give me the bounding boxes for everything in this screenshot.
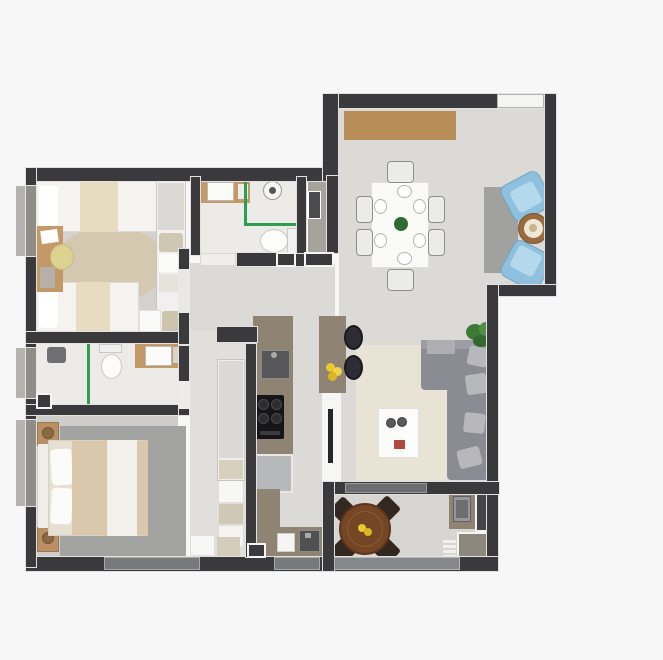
wall-bathroom1-east <box>296 176 307 254</box>
bed-single-top-pillow <box>39 186 58 227</box>
laundry-tank <box>277 533 295 552</box>
dining-chair-north <box>387 161 414 183</box>
cooktop-burner <box>271 413 282 424</box>
cooktop-burner <box>258 413 269 424</box>
closet-rack-hangers <box>219 361 243 458</box>
nightstand-lamp <box>42 427 54 439</box>
desk-accessories <box>40 267 55 288</box>
column-service <box>247 543 266 558</box>
closet-box <box>219 460 243 479</box>
bed-single-bottom-blanket <box>76 282 110 333</box>
window-bedroom2 <box>25 185 37 257</box>
cooktop-burner <box>271 399 282 410</box>
cooktop-controls <box>260 431 280 435</box>
place-setting <box>413 233 426 248</box>
coffee-table-books <box>394 440 405 449</box>
bed-single-bottom-pillow <box>39 287 58 328</box>
table-centerpiece-plant <box>394 217 408 231</box>
island-flowers <box>328 372 337 381</box>
sliding-glass-door <box>345 483 427 493</box>
wall-dining-west <box>326 175 339 254</box>
master-headboard <box>38 444 48 528</box>
closet2-lower-towel <box>139 310 161 333</box>
bed-single-top-blanket <box>80 181 118 232</box>
bbq-grill-inner <box>456 500 468 518</box>
wall-right-upper <box>544 93 557 296</box>
wall-corridor-top <box>216 326 258 343</box>
wall-connector <box>322 93 339 182</box>
balcony-glass-rail <box>334 557 460 570</box>
closet-lower-towel <box>190 535 215 556</box>
nook-teapot <box>529 224 537 232</box>
place-setting <box>413 199 426 214</box>
toilet2-tank <box>99 344 122 353</box>
bar-stool <box>344 355 363 380</box>
floor-grate-bar <box>443 550 456 553</box>
shower1-glass-vertical <box>244 180 247 226</box>
shower1-head-dot <box>269 187 276 194</box>
ensuite-sink <box>145 346 172 366</box>
service-faucet <box>305 533 311 538</box>
toilet2-bowl <box>101 354 122 379</box>
wall-right-lower <box>486 284 499 572</box>
master-throw <box>107 440 137 536</box>
entry-door <box>497 94 544 108</box>
dining-chair-east-1 <box>428 196 445 223</box>
coffee-table <box>378 408 419 458</box>
wall-bathroom1-west <box>190 176 201 256</box>
dining-chair-west-1 <box>356 196 373 223</box>
dining-chair-south <box>387 269 414 291</box>
window-ensuite <box>25 347 37 399</box>
desk-paper <box>40 229 59 244</box>
bedroom2-door <box>178 269 190 313</box>
dining-chair-west-2 <box>356 229 373 256</box>
floor-grate-bar <box>443 540 456 543</box>
window-sill <box>16 186 25 256</box>
shower1-glass-horizontal <box>244 223 298 226</box>
kitchen-island <box>319 316 346 393</box>
sofa-throw <box>427 340 455 354</box>
place-setting <box>374 199 387 214</box>
dining-chair-east-2 <box>428 229 445 256</box>
tv <box>328 409 333 463</box>
coffee-table-cup <box>397 417 407 427</box>
bathroom1-sink <box>207 182 234 201</box>
sofa-pillow <box>465 373 489 396</box>
window-service <box>274 557 320 570</box>
shaft-top-duct <box>308 191 321 219</box>
kitchen-faucet <box>271 352 277 358</box>
toilet1-bowl <box>260 229 288 253</box>
sofa-pillow <box>463 412 486 434</box>
master-pillow <box>50 448 73 485</box>
wall-bedroom2-ensuite <box>25 331 188 344</box>
bar-stool <box>344 325 363 350</box>
closet2-hanging-rack <box>158 183 184 230</box>
shower2-glass <box>87 344 90 406</box>
floor-grate-bar <box>443 545 456 548</box>
place-setting <box>374 233 387 248</box>
coffee-table-cup <box>386 418 396 428</box>
kitchen-appliance <box>253 454 293 493</box>
closet-box <box>219 504 243 524</box>
column-ensuite <box>36 393 52 409</box>
cooktop-burner <box>258 399 269 410</box>
closet-lower-basket <box>217 537 240 556</box>
floor-plan <box>0 0 663 660</box>
window-sill <box>16 420 25 506</box>
place-setting <box>397 185 412 198</box>
balcony-flowers <box>364 528 372 536</box>
bathroom1-door <box>200 253 236 266</box>
place-setting <box>397 252 412 265</box>
wall-niche-panel <box>276 252 296 267</box>
master-pillow <box>50 487 73 524</box>
window-sill <box>16 348 25 398</box>
wall-top-left-block <box>25 167 335 182</box>
closet-box <box>219 481 243 502</box>
shower2-head <box>47 347 66 363</box>
sideboard <box>344 111 456 140</box>
window-master-west <box>25 419 37 507</box>
wall-nook-bottom <box>494 284 557 297</box>
wall-niche-panel <box>304 252 334 267</box>
window-master-south <box>104 557 200 570</box>
ensuite-door <box>178 381 190 409</box>
wall-kitchen-west <box>245 343 257 558</box>
